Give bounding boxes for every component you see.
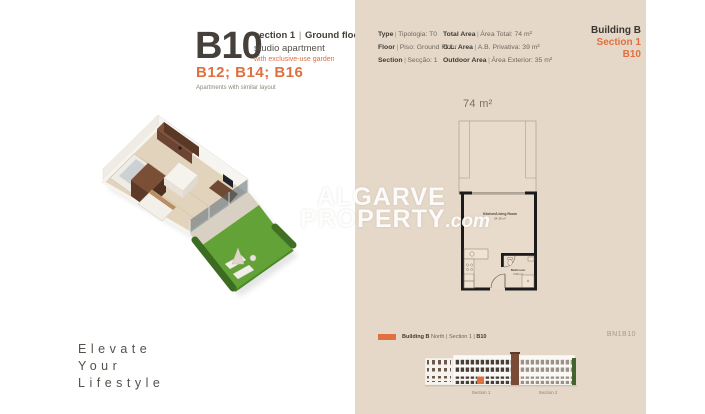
tagline-line: Lifestyle bbox=[78, 375, 164, 392]
unit-reference-code: BN1B10 bbox=[607, 331, 636, 338]
spec-row: Total Area|Área Total: 74 m² bbox=[443, 28, 552, 41]
building-name: Building B bbox=[591, 25, 641, 37]
garden-table bbox=[250, 255, 256, 261]
similar-units: B12; B14; B16 bbox=[196, 64, 303, 81]
spec-row: Outdoor Area|Área Exterior: 35 m² bbox=[443, 54, 552, 67]
building-section: Section 1 bbox=[591, 37, 641, 49]
similar-units-note: Apartments with similar layout bbox=[196, 85, 276, 91]
hedge bbox=[572, 358, 576, 385]
title-garden-note: with exclusive-use garden bbox=[254, 56, 363, 63]
legend-swatch bbox=[378, 334, 396, 340]
isometric-floorplan-render bbox=[75, 112, 310, 307]
elevator-tower bbox=[511, 352, 519, 385]
building-unit: B10 bbox=[591, 49, 641, 61]
tagline-line: Your bbox=[78, 358, 164, 375]
elevation-section-label: Section 1 bbox=[472, 390, 491, 395]
building-reference: Building B Section 1 B10 bbox=[591, 25, 641, 61]
legend: Building B North | Section 1 | B10 bbox=[378, 334, 486, 340]
room-area: 34.30 m² bbox=[494, 216, 506, 220]
plan-total-area: 74 m² bbox=[463, 98, 493, 110]
title-divider: | bbox=[299, 30, 301, 41]
title-subtitle: studio apartment bbox=[254, 44, 363, 54]
building-elevation bbox=[425, 352, 577, 388]
title-section: section 1 bbox=[254, 30, 295, 41]
unit-code-title: B10 bbox=[195, 27, 262, 65]
garden-outline bbox=[459, 121, 536, 193]
spec-column-2: Total Area|Área Total: 74 m² G.L. Area|A… bbox=[443, 28, 552, 67]
room-area: 4.50 m² bbox=[513, 272, 523, 276]
tagline: Elevate Your Lifestyle bbox=[78, 341, 164, 392]
watermark: ALGARVE PROPERTY.com bbox=[300, 186, 490, 233]
legend-text: Building B North | Section 1 | B10 bbox=[402, 334, 486, 340]
highlighted-unit bbox=[477, 377, 484, 385]
spec-row: G.L. Area|A.B. Privativa: 39 m² bbox=[443, 41, 552, 54]
brochure-page: B10 section 1 | Ground floor studio apar… bbox=[0, 0, 705, 414]
title-section-floor: section 1 | Ground floor bbox=[254, 31, 363, 41]
tagline-line: Elevate bbox=[78, 341, 164, 358]
title-stack: section 1 | Ground floor studio apartmen… bbox=[254, 31, 363, 63]
elevation-section-label: Section 2 bbox=[539, 390, 558, 395]
